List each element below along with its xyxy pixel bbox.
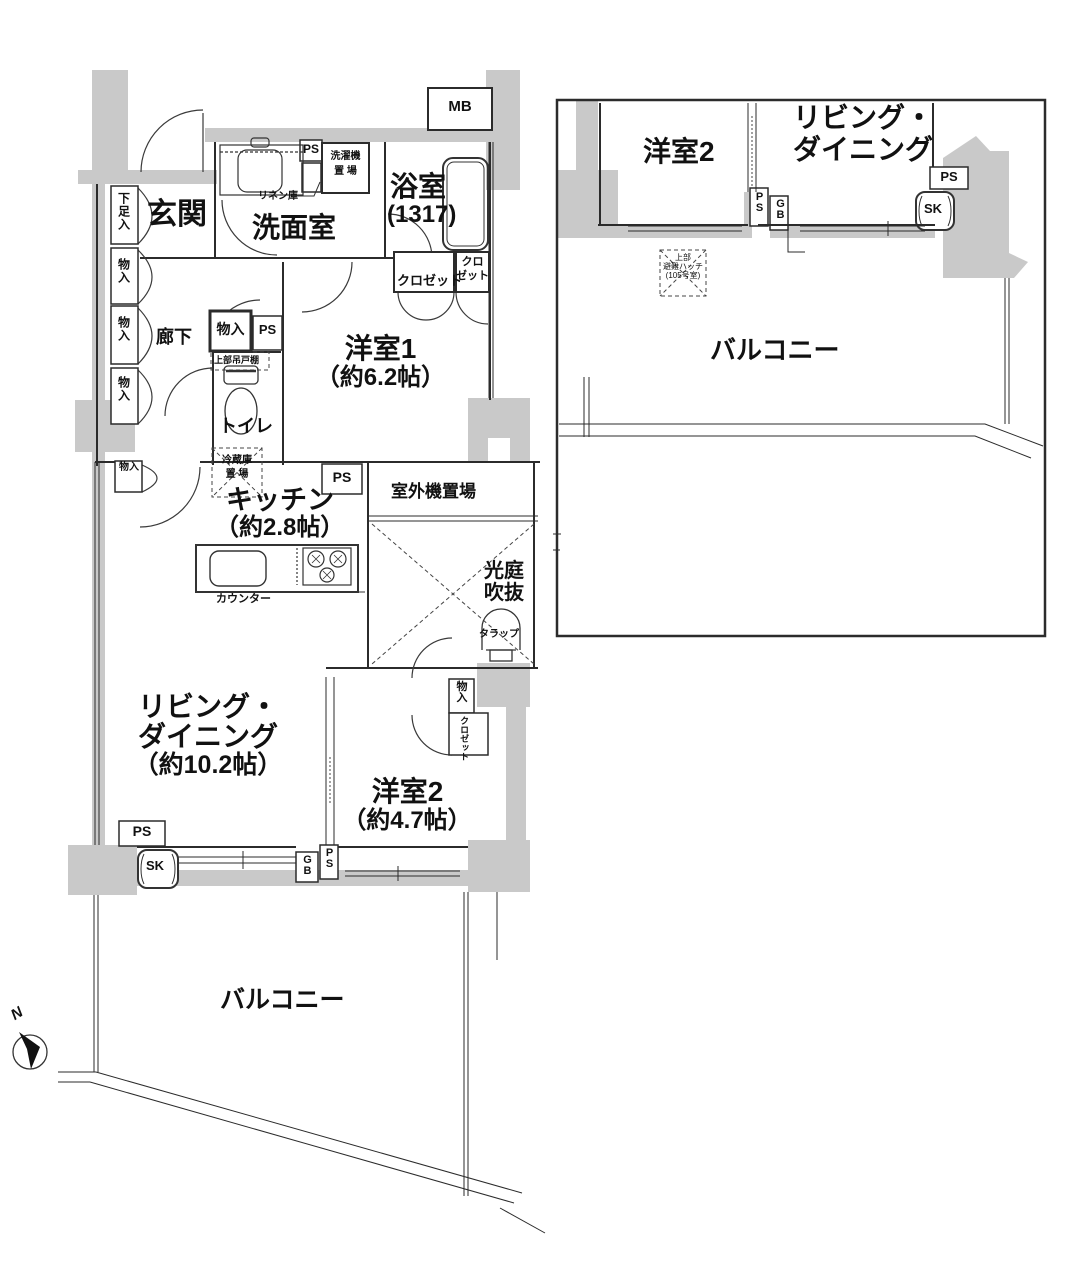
bedroom1-door-arc — [302, 262, 352, 312]
room-label-living-1: リビング・ — [118, 691, 298, 722]
label-fridge-2: 置 場 — [212, 469, 262, 480]
label-shoe-storage: 下足入 — [116, 192, 129, 231]
inset-label-ps-top: PS — [930, 170, 968, 185]
room-label-bath-size: (1317) — [387, 202, 456, 229]
label-storage-2: 物入 — [116, 316, 129, 342]
label-closet-b1: クロ — [456, 256, 489, 268]
label-ladder: タラップ — [479, 629, 519, 640]
label-laundry-2: 置 場 — [322, 166, 369, 177]
room-label-bedroom1: 洋室1 — [288, 333, 473, 364]
linen-pointer-line — [292, 180, 322, 200]
label-ps-hall: PS — [253, 323, 282, 338]
inset-room-label-living-1: リビング・ — [788, 102, 938, 133]
label-closet-bedroom2: クロゼット — [459, 716, 469, 761]
room-label-living-2: ダイニング — [118, 721, 298, 752]
room-label-balcony: バルコニー — [220, 986, 345, 1014]
label-fridge-1: 冷蔵庫 — [212, 455, 262, 466]
inset-label-gb: GB — [773, 199, 788, 221]
label-storage-bedroom2: 物入 — [453, 682, 471, 704]
label-outdoor-unit: 室外機置場 — [391, 482, 476, 501]
room-label-hallway: 廊下 — [156, 327, 192, 347]
label-gb: GB — [300, 855, 315, 877]
room-label-genkan: 玄関 — [147, 198, 207, 232]
room-label-toilet: トイレ — [219, 416, 273, 436]
inset-label-ps: PS — [753, 192, 766, 214]
inset-label-sk: SK — [924, 202, 942, 217]
stove-icon — [297, 548, 351, 585]
label-ps-washroom: PS — [300, 143, 322, 156]
wall-notch — [488, 438, 510, 462]
entry-door-arc — [141, 110, 203, 172]
toilet-door-arc — [165, 368, 213, 416]
label-ps-ld: PS — [119, 824, 165, 840]
label-ps-kitchen: PS — [322, 470, 362, 486]
label-storage-3: 物入 — [116, 376, 129, 402]
label-closet-a: クロゼット — [397, 274, 462, 289]
label-ps-south: PS — [323, 848, 336, 870]
room-label-living-size: （約10.2帖） — [112, 751, 304, 779]
label-upper-cabinet: 上部吊戸棚 — [214, 355, 259, 365]
room-label-bath: 浴室 — [390, 171, 446, 202]
inset-label-hatch-3: (105号室) — [658, 272, 708, 281]
room-label-bedroom2-size: （約4.7帖） — [322, 808, 492, 835]
label-storage-1: 物入 — [116, 258, 129, 284]
label-hall-storage: 物入 — [210, 322, 251, 338]
room-label-kitchen-size: （約2.8帖） — [215, 515, 344, 542]
room-label-washroom: 洗面室 — [252, 212, 336, 243]
north-arrow-icon — [13, 1032, 47, 1069]
floorplan-canvas: 玄関 洗面室 浴室 (1317) 洋室1 （約6.2帖） 廊下 トイレ キッチン… — [0, 0, 1082, 1262]
vanity-sink-icon — [220, 138, 303, 195]
label-light-court-2: 吹抜 — [484, 582, 524, 604]
inset-room-label-balcony: バルコニー — [710, 336, 839, 365]
label-counter: カウンター — [216, 593, 271, 605]
label-closet-b2: ゼット — [456, 270, 489, 282]
label-light-court-1: 光庭 — [484, 560, 524, 582]
inset-room-label-living-2: ダイニング — [788, 134, 938, 165]
balcony-misc — [497, 892, 545, 1233]
label-meter-box: MB — [428, 99, 492, 116]
floorplan-drawing — [0, 0, 1082, 1262]
label-storage-4: 物入 — [119, 463, 139, 473]
label-laundry-1: 洗濯機 — [322, 151, 369, 162]
ld-door-arc — [140, 467, 200, 527]
room-label-kitchen: キッチン — [226, 485, 334, 515]
inset-room-label-bedroom2: 洋室2 — [643, 136, 715, 167]
label-sk: SK — [146, 859, 164, 874]
room-label-bedroom2: 洋室2 — [330, 776, 485, 807]
room-label-bedroom1-size: （約6.2帖） — [288, 365, 473, 392]
